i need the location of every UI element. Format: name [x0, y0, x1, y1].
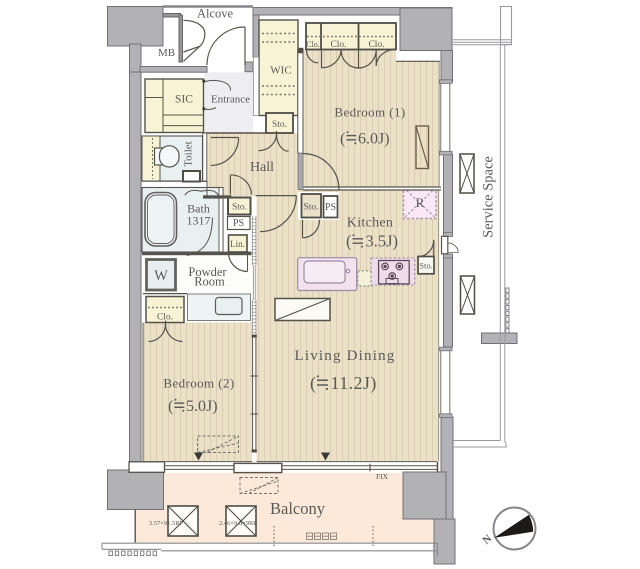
- svg-text:Living Dining: Living Dining: [294, 348, 395, 364]
- svg-text:2.46×9.8×9RF: 2.46×9.8×9RF: [219, 520, 257, 527]
- svg-text:Sto.: Sto.: [303, 203, 318, 213]
- svg-text:N: N: [480, 533, 494, 547]
- svg-text:Balcony: Balcony: [270, 499, 326, 518]
- svg-text:FIX: FIX: [376, 472, 389, 481]
- svg-text:11.2J): 11.2J): [331, 373, 377, 394]
- svg-text:3.57×91.5RF: 3.57×91.5RF: [149, 520, 184, 527]
- svg-text:PS: PS: [325, 202, 336, 213]
- svg-text:Clo.: Clo.: [306, 40, 320, 49]
- svg-text:Kitchen: Kitchen: [347, 216, 393, 231]
- svg-text:R: R: [416, 195, 425, 210]
- svg-text:5.0J): 5.0J): [186, 398, 218, 415]
- svg-text:Bedroom (2): Bedroom (2): [163, 376, 234, 391]
- svg-text:PS: PS: [233, 218, 244, 229]
- svg-text:3.5J): 3.5J): [366, 232, 399, 251]
- svg-text:Room: Room: [194, 275, 225, 289]
- svg-text:MB: MB: [158, 47, 175, 59]
- svg-text:Sto.: Sto.: [419, 261, 432, 271]
- svg-text:Service Space: Service Space: [481, 156, 497, 238]
- svg-text:SIC: SIC: [175, 94, 193, 106]
- svg-text:6.0J): 6.0J): [358, 131, 390, 148]
- svg-text:1317: 1317: [187, 214, 211, 228]
- svg-text:W: W: [154, 268, 168, 284]
- svg-text:Alcove: Alcove: [197, 7, 234, 21]
- svg-text:Clo.: Clo.: [330, 40, 346, 50]
- svg-text:Entrance: Entrance: [211, 94, 250, 106]
- svg-text:Lin.: Lin.: [230, 239, 245, 249]
- svg-text:Clo.: Clo.: [157, 313, 173, 323]
- svg-text:WIC: WIC: [270, 65, 291, 77]
- svg-text:(: (: [168, 398, 173, 415]
- svg-text:(: (: [340, 131, 345, 148]
- svg-text:Sto.: Sto.: [232, 203, 247, 213]
- svg-text:Clo.: Clo.: [368, 40, 384, 50]
- svg-text:Bedroom (1): Bedroom (1): [334, 105, 405, 120]
- svg-text:Toilet: Toilet: [183, 141, 195, 167]
- svg-text:Sto.: Sto.: [272, 120, 287, 130]
- svg-text:Hall: Hall: [250, 160, 274, 175]
- svg-text:(: (: [346, 232, 352, 251]
- svg-text:(: (: [310, 373, 316, 394]
